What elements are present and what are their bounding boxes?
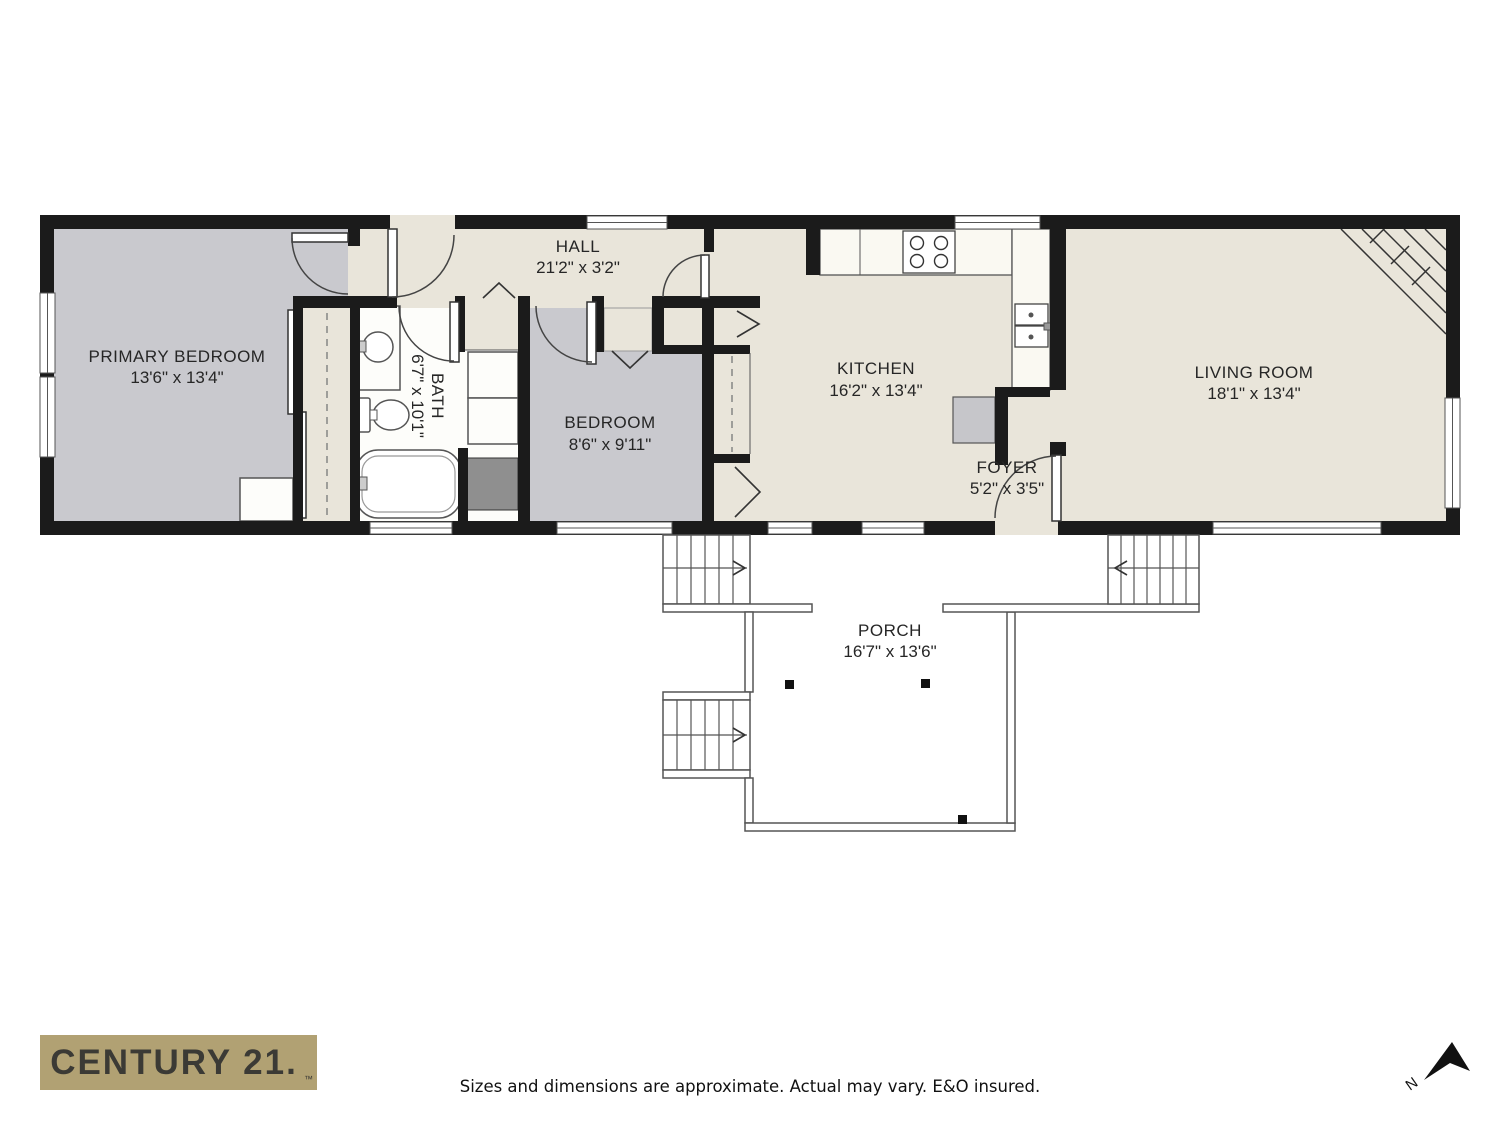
porch-post-2 xyxy=(921,679,930,688)
hall-closet xyxy=(664,308,702,345)
stairs-upper-left xyxy=(663,535,750,604)
hall-door xyxy=(701,255,709,298)
floor-plan: PRIMARY BEDROOM 13'6" x 13'4" HALL 21'2"… xyxy=(0,0,1500,1125)
kitchen-label: KITCHEN xyxy=(837,359,915,378)
porch-rail xyxy=(943,604,1199,612)
primary-bedroom-label: PRIMARY BEDROOM xyxy=(89,347,266,366)
logo-wordmark: CENTURY 21. xyxy=(50,1043,298,1082)
porch-rail xyxy=(745,778,753,823)
entry-door-gap xyxy=(390,215,455,229)
burner-2 xyxy=(935,237,948,250)
porch-rail xyxy=(663,770,750,778)
bath-sink xyxy=(363,332,393,362)
porch-post-3 xyxy=(958,815,967,824)
porch-rail xyxy=(745,823,1015,831)
kitchen-dims: 16'2" x 13'4" xyxy=(829,381,922,400)
porch-rail xyxy=(1007,612,1015,823)
sink-drain-1 xyxy=(1029,313,1034,318)
foyer-closet xyxy=(953,397,995,443)
entry-door xyxy=(388,229,397,297)
bathtub xyxy=(356,450,461,518)
burner-4 xyxy=(935,255,948,268)
burner-3 xyxy=(911,255,924,268)
bedroom-closet xyxy=(604,308,652,351)
porch-rail xyxy=(745,612,753,692)
hall-label: HALL xyxy=(556,237,601,256)
bath-dims: 6'7" x 10'1" xyxy=(408,354,427,438)
hall-dims: 21'2" x 3'2" xyxy=(536,258,620,277)
porch-rail xyxy=(663,604,812,612)
sink-drain-2 xyxy=(1029,335,1034,340)
north-arrow-icon xyxy=(1424,1042,1470,1080)
porch-dims: 16'7" x 13'6" xyxy=(843,642,936,661)
shelf-upper xyxy=(468,352,518,398)
foyer-label: FOYER xyxy=(976,458,1037,477)
foyer-dims: 5'2" x 3'5" xyxy=(970,479,1044,498)
primary-bedroom-door xyxy=(292,233,348,242)
porch-post-1 xyxy=(785,680,794,689)
porch-label: PORCH xyxy=(858,621,922,640)
stairs-right xyxy=(1108,535,1199,604)
stove xyxy=(903,231,955,273)
disclaimer-text: Sizes and dimensions are approximate. Ac… xyxy=(460,1077,1041,1096)
living-room-dims: 18'1" x 13'4" xyxy=(1207,384,1300,403)
porch xyxy=(663,535,1199,831)
toilet-seat-hinge xyxy=(370,410,377,420)
shelf-lower xyxy=(468,398,518,444)
north-arrow: N xyxy=(1403,1042,1470,1094)
front-door-gap xyxy=(995,521,1058,535)
bedroom-dims: 8'6" x 9'11" xyxy=(569,435,652,454)
burner-1 xyxy=(911,237,924,250)
bedroom-door xyxy=(587,302,596,364)
trademark-symbol: ™ xyxy=(304,1074,313,1084)
primary-bedroom-dims: 13'6" x 13'4" xyxy=(130,368,223,387)
bedroom-label: BEDROOM xyxy=(564,413,655,432)
toilet-bowl xyxy=(373,400,409,430)
storage-box xyxy=(463,458,518,510)
front-door xyxy=(1052,455,1061,521)
linen-alcove xyxy=(465,308,518,350)
brand-logo: CENTURY 21. ™ xyxy=(40,1035,317,1090)
living-room-label: LIVING ROOM xyxy=(1195,363,1314,382)
bath-door xyxy=(450,302,459,362)
bath-label: BATH xyxy=(428,373,447,419)
porch-rail xyxy=(663,692,750,700)
north-label: N xyxy=(1403,1074,1422,1094)
primary-bedroom-builtin xyxy=(240,478,293,521)
